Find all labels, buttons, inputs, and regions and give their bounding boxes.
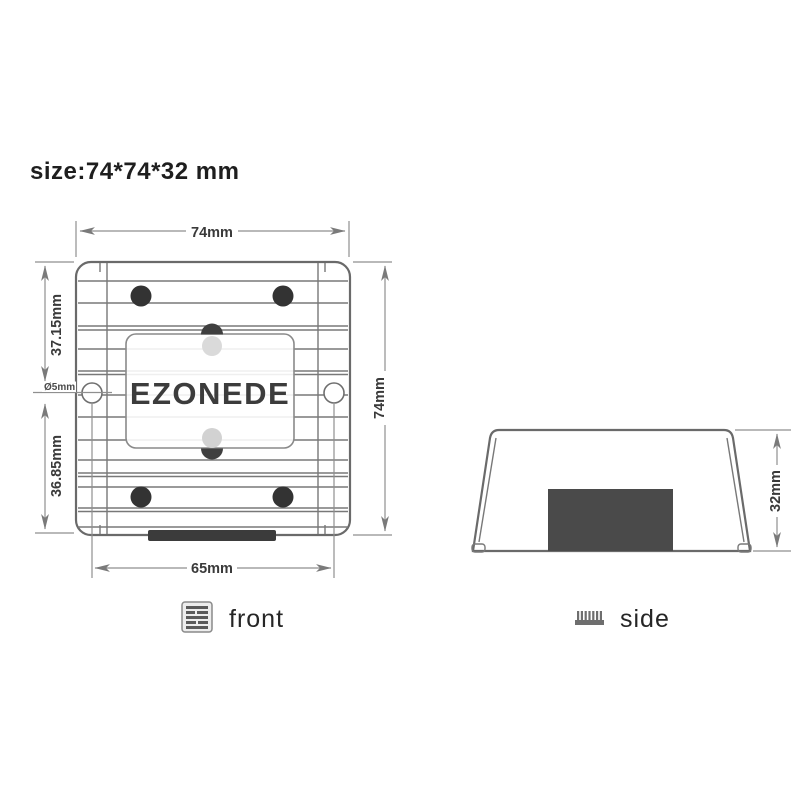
size-title: size:74*74*32 mm (30, 158, 239, 186)
front-caption-label: front (229, 605, 284, 633)
dimension-left-stack: 37.15mm Ø5mm 36.85mm (35, 262, 76, 533)
side-caption-label: side (620, 605, 670, 633)
heatsink-front-icon (182, 602, 212, 632)
dimension-label-side-height: 32mm (768, 470, 784, 512)
screw-top-right (273, 286, 294, 307)
screw-bottom-left (131, 487, 152, 508)
side-connector-block (548, 489, 673, 551)
brand-label-plate: EZONEDE (126, 324, 294, 460)
dimension-label-upper-left: 37.15mm (49, 294, 65, 356)
dimension-label-top-width: 74mm (191, 225, 233, 241)
heatsink-side-icon (575, 611, 604, 625)
diagram-page: size:74*74*32 mm (0, 0, 800, 800)
brand-label: EZONEDE (130, 376, 290, 411)
dimension-top-width: 74mm (76, 221, 349, 257)
side-caption: side (575, 605, 670, 633)
screw-top-left (131, 286, 152, 307)
bottom-connector-bar (148, 530, 276, 541)
front-caption: front (182, 602, 284, 633)
label-pin-bottom-light (202, 428, 222, 448)
dimension-label-bottom-spacing: 65mm (191, 561, 233, 577)
dimension-label-right-height: 74mm (372, 377, 388, 419)
label-tab-bottom (201, 449, 223, 460)
dimension-drawing: EZONEDE 74mm 74mm (0, 0, 800, 800)
dimension-label-hole: Ø5mm (44, 382, 75, 393)
label-tab-top (201, 324, 223, 335)
dimension-right-height: 74mm (353, 262, 394, 535)
mount-hole-right (324, 383, 344, 403)
front-view: EZONEDE 74mm 74mm (33, 221, 394, 633)
label-pin-top-light (202, 336, 222, 356)
screw-bottom-right (273, 487, 294, 508)
side-view: 32mm side (472, 430, 791, 633)
dimension-side-height: 32mm (735, 430, 791, 551)
dimension-label-lower-left: 36.85mm (49, 435, 65, 497)
